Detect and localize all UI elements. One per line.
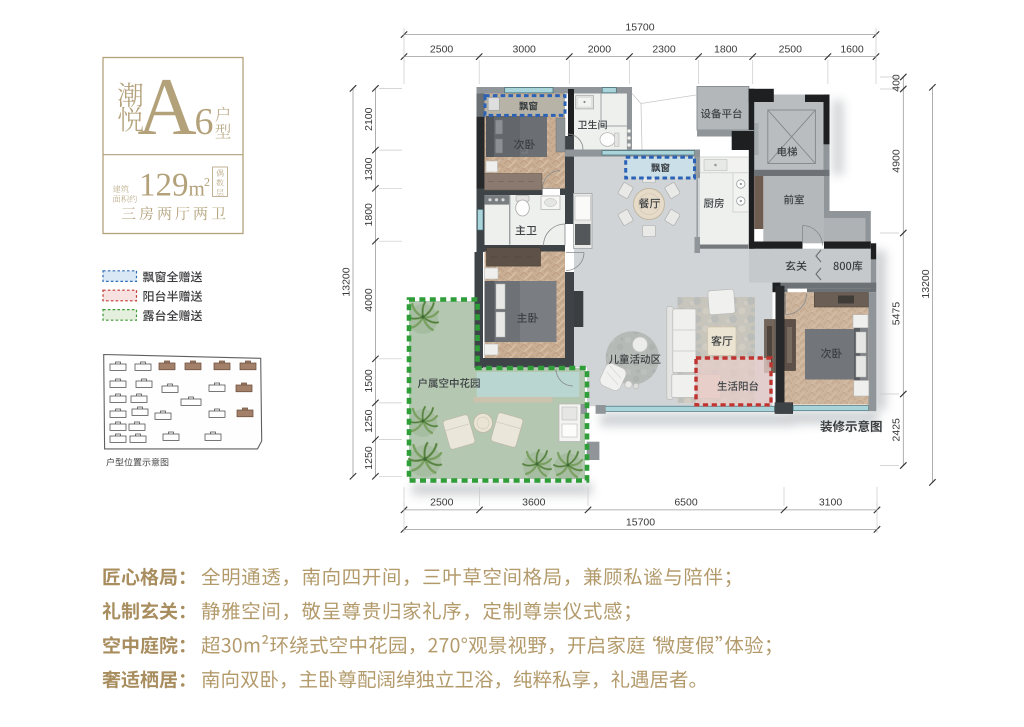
svg-text:1300: 1300 [363, 157, 375, 181]
svg-text:2500: 2500 [779, 44, 803, 56]
svg-text:3100: 3100 [819, 497, 843, 509]
svg-text:4900: 4900 [891, 149, 903, 173]
svg-text:2425: 2425 [891, 418, 903, 442]
svg-text:400: 400 [891, 74, 903, 92]
svg-text:1600: 1600 [840, 44, 864, 56]
svg-text:1250: 1250 [363, 409, 375, 433]
svg-text:2500: 2500 [430, 497, 454, 509]
svg-text:3600: 3600 [522, 497, 546, 509]
svg-text:1800: 1800 [714, 44, 738, 56]
svg-text:5475: 5475 [891, 302, 903, 326]
svg-text:2100: 2100 [363, 107, 375, 131]
svg-text:2300: 2300 [652, 44, 676, 56]
svg-text:13200: 13200 [920, 269, 932, 298]
svg-text:2000: 2000 [588, 44, 612, 56]
svg-text:1250: 1250 [363, 446, 375, 470]
svg-text:1500: 1500 [363, 369, 375, 393]
svg-text:3000: 3000 [513, 44, 537, 56]
svg-text:1800: 1800 [363, 203, 375, 227]
svg-text:4000: 4000 [363, 288, 375, 312]
svg-text:13200: 13200 [341, 267, 353, 296]
svg-text:6500: 6500 [674, 497, 698, 509]
svg-text:2500: 2500 [430, 44, 454, 56]
svg-text:15700: 15700 [625, 22, 654, 34]
svg-text:15700: 15700 [626, 516, 655, 528]
